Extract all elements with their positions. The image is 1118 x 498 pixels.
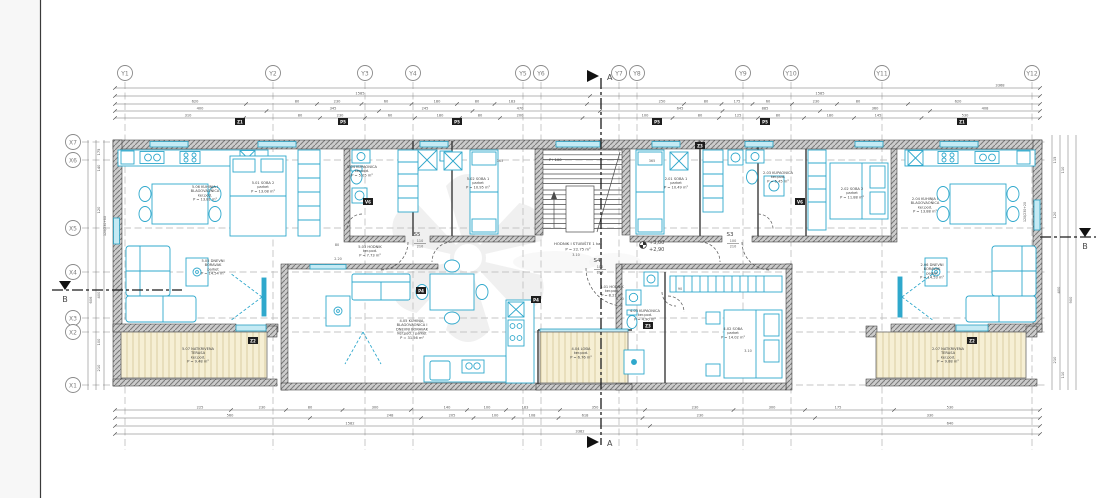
grid-bubble-label: Y1 (120, 70, 129, 77)
dim-label: 115 (1053, 157, 1057, 164)
dim-label: 408 (982, 107, 990, 111)
dim-label: 300 (372, 406, 380, 410)
dim-label: 230 (337, 114, 345, 118)
opening-tag-label: P4 (533, 298, 539, 303)
opening-tag-label: Z2 (969, 339, 975, 344)
dim-label: 140 (97, 164, 101, 172)
dim-label: 310 (185, 114, 193, 118)
section-a-label-bottom: A (607, 439, 613, 448)
dim-label: 618 (582, 414, 590, 418)
door-width: 100 (597, 265, 603, 269)
dim-label: 80 (856, 100, 861, 104)
dim-label: 80 (704, 100, 709, 104)
dim-label: 640 (947, 422, 955, 426)
dim-label: 210 (1053, 356, 1057, 364)
dim-label: 530 (962, 114, 970, 118)
dim-label: 1585 (815, 92, 824, 96)
dim-label: 620 (192, 100, 200, 104)
dim-label: 175 (734, 100, 741, 104)
section-b-label-left: B (62, 295, 68, 304)
dim-label: 80 (698, 114, 703, 118)
dim-label: 108 (529, 414, 537, 418)
opening-tag-label: Z1 (237, 120, 243, 125)
dim-label: 100 (484, 406, 492, 410)
dim-label: 145 (875, 114, 882, 118)
opening-tag-label: P4 (418, 289, 424, 294)
dim-label: 100 (642, 114, 650, 118)
dim-label: 230 (334, 100, 342, 104)
door-tag-s4: S4 (594, 258, 601, 264)
room-label: 2.01 SOBA 1parketP = 10.49 m² (664, 177, 688, 189)
section-b-marker-left (59, 281, 71, 290)
dim-label: 180 (434, 100, 442, 104)
dining-table-right (937, 184, 1019, 224)
dim-label: 210 (97, 364, 101, 372)
dim-label: 180 (827, 114, 835, 118)
dim-label: 60 (388, 114, 393, 118)
interior-dim: 1.20 (616, 297, 624, 301)
sofa-left-unit (126, 246, 266, 322)
door-tag-s5: S5 (414, 232, 421, 238)
dim-label: 300 (769, 406, 777, 410)
dim-label: 885 (762, 107, 769, 111)
stair-hall-label: HODNIK I STUBIŠTE 1 kat (554, 241, 602, 246)
dim-label: 1585 (355, 92, 364, 96)
grid-bubble-label: X2 (69, 329, 77, 336)
page-margin-strip (0, 0, 40, 498)
dim-label: 230 (259, 406, 267, 410)
dim-label: 175 (835, 406, 842, 410)
dim-label: 125 (735, 114, 742, 118)
door-height: 210 (730, 245, 736, 249)
opening-tag-label: P5 (762, 120, 768, 125)
dim-label: 330 (927, 414, 935, 418)
dim-label: 100 (492, 414, 500, 418)
door-width: 100 (730, 239, 736, 243)
opening-tag-label: Z2 (250, 339, 256, 344)
dim-label: 250 (659, 100, 667, 104)
grid-bubble-label: X5 (69, 225, 77, 232)
grid-bubble-label: Y3 (360, 70, 369, 77)
grid-bubble-label: Y6 (536, 70, 545, 77)
opening-tag-label: P5 (454, 120, 460, 125)
grid-bubble-label: Y5 (518, 70, 527, 77)
grid-bubble-label: X7 (69, 139, 77, 146)
dim-label: 80 (478, 114, 483, 118)
kitchen-counter-right (905, 150, 1035, 166)
dim-label: 560 (227, 414, 235, 418)
interior-dim: 2.20 (334, 257, 342, 261)
dim-label: 110 (1061, 371, 1065, 379)
interior-dim: 3.10 (744, 349, 752, 353)
dim-label: 80 (475, 100, 480, 104)
dim-label: 470 (517, 107, 525, 111)
dim-label: 183 (509, 100, 516, 104)
grid-bubble-label: Y2 (268, 70, 277, 77)
grid-bubble-label: Y11 (875, 70, 887, 77)
section-a-marker-top (587, 70, 599, 82)
grid-bubble-label: Y10 (784, 70, 796, 77)
door-width: 110 (417, 239, 423, 243)
opening-tag-label: V6 (797, 200, 803, 205)
left-window-size: 120/230+80 (103, 216, 107, 236)
stair-level-tag: P+100 (549, 157, 562, 162)
grid-bubble-label: X4 (69, 269, 77, 276)
dim-label: 1582 (345, 422, 354, 426)
opening-tag-label: Z1 (959, 120, 965, 125)
opening-tag-label: Z3 (697, 144, 703, 149)
right-window-size: 120/230+20 (1023, 202, 1027, 222)
dim-label: 140 (444, 406, 452, 410)
dim-label: 248 (387, 414, 395, 418)
interior-dim: 90 (678, 287, 682, 291)
door-height: 210 (417, 245, 423, 249)
dim-label: 100 (97, 338, 101, 346)
opening-tag-label: P5 (654, 120, 660, 125)
dim-label: 60 (766, 100, 771, 104)
section-a-marker-bottom (587, 436, 599, 448)
elevation-upper: +3,00 (649, 240, 664, 246)
room-label: 5.03 HODNIKker.pod.P = 7.73 m² (358, 245, 382, 257)
dim-label: 606 (89, 296, 93, 304)
section-b-label-right: B (1082, 242, 1088, 251)
dim-label: 120 (97, 206, 101, 214)
elevation-lower: +2,90 (649, 247, 664, 253)
stair-hall-area: P = 22.75 m² (565, 247, 591, 252)
interior-dim: 365 (649, 159, 655, 163)
floor-plan-canvas: Y1Y2Y3Y4Y5Y6Y7Y8Y9Y10Y11Y12X7X6X5X4X3X2X… (0, 0, 1118, 498)
opening-tag-label: P5 (340, 120, 346, 125)
dim-label: 400 (1057, 286, 1061, 294)
dim-label: 230 (813, 100, 821, 104)
floor-plan-page: Y1Y2Y3Y4Y5Y6Y7Y8Y9Y10Y11Y12X7X6X5X4X3X2X… (0, 0, 1118, 498)
grid-bubble-label: Y12 (1025, 70, 1037, 77)
dim-label: 180 (437, 114, 445, 118)
dim-label: 120 (1053, 211, 1057, 219)
door-height: 210 (597, 271, 603, 275)
room-label: 2.04 KUHINJA IBLAGOVAONICAker.pod.P = 13… (911, 197, 940, 214)
elevation-marker: +3,00 +2,90 (640, 240, 665, 253)
section-b-marker-right (1079, 228, 1091, 237)
dim-label: 183 (522, 406, 529, 410)
grid-bubble-label: Y4 (408, 70, 417, 77)
grid-bubble-label: Y8 (632, 70, 641, 77)
room-label: 4.05 KUHINJA,BLAGOVAONICA IDNEVNI BORAVA… (396, 319, 429, 340)
dim-label: 645 (677, 107, 684, 111)
dim-label: 80 (308, 406, 313, 410)
grid-bubble-label: X3 (69, 315, 77, 322)
dim-label: 350 (592, 406, 600, 410)
dim-label: 530 (947, 406, 955, 410)
dim-label: 400 (97, 291, 101, 299)
dim-label: 80 (776, 114, 781, 118)
dim-label: 225 (197, 406, 204, 410)
dim-label: 230 (692, 406, 700, 410)
dim-label: 3382 (575, 430, 584, 434)
dim-label: 3368 (995, 84, 1005, 88)
dim-label: 200 (517, 114, 525, 118)
dim-label: 400 (197, 107, 205, 111)
grid-bubble-label: X1 (69, 382, 77, 389)
section-a-label-top: A (607, 73, 613, 82)
dim-label: 360 (872, 107, 880, 111)
opening-tag-label: V6 (365, 200, 371, 205)
dim-label: 900 (1069, 296, 1073, 304)
dim-label: 110 (1061, 166, 1065, 174)
interior-dim: 80 (335, 243, 339, 247)
dim-label: 345 (330, 107, 337, 111)
dim-label: 60 (384, 100, 389, 104)
dim-label: 80 (298, 114, 303, 118)
opening-tag-label: Z3 (645, 324, 651, 329)
dim-label: 205 (449, 414, 456, 418)
dim-label: 175 (97, 149, 101, 156)
dim-label: 230 (697, 414, 705, 418)
interior-dim: 3.10 (572, 253, 580, 257)
interior-dim: 365 (497, 159, 503, 163)
grid-bubble-label: Y7 (614, 70, 623, 77)
bed-left-unit (230, 150, 320, 236)
grid-bubble-label: Y9 (738, 70, 747, 77)
dim-label: 80 (295, 100, 300, 104)
grid-bubble-label: X6 (69, 157, 77, 164)
dim-label: 245 (422, 107, 429, 111)
sofa-right-unit (898, 246, 1036, 322)
dim-label: 620 (955, 100, 963, 104)
door-tag-s3: S3 (727, 232, 734, 238)
